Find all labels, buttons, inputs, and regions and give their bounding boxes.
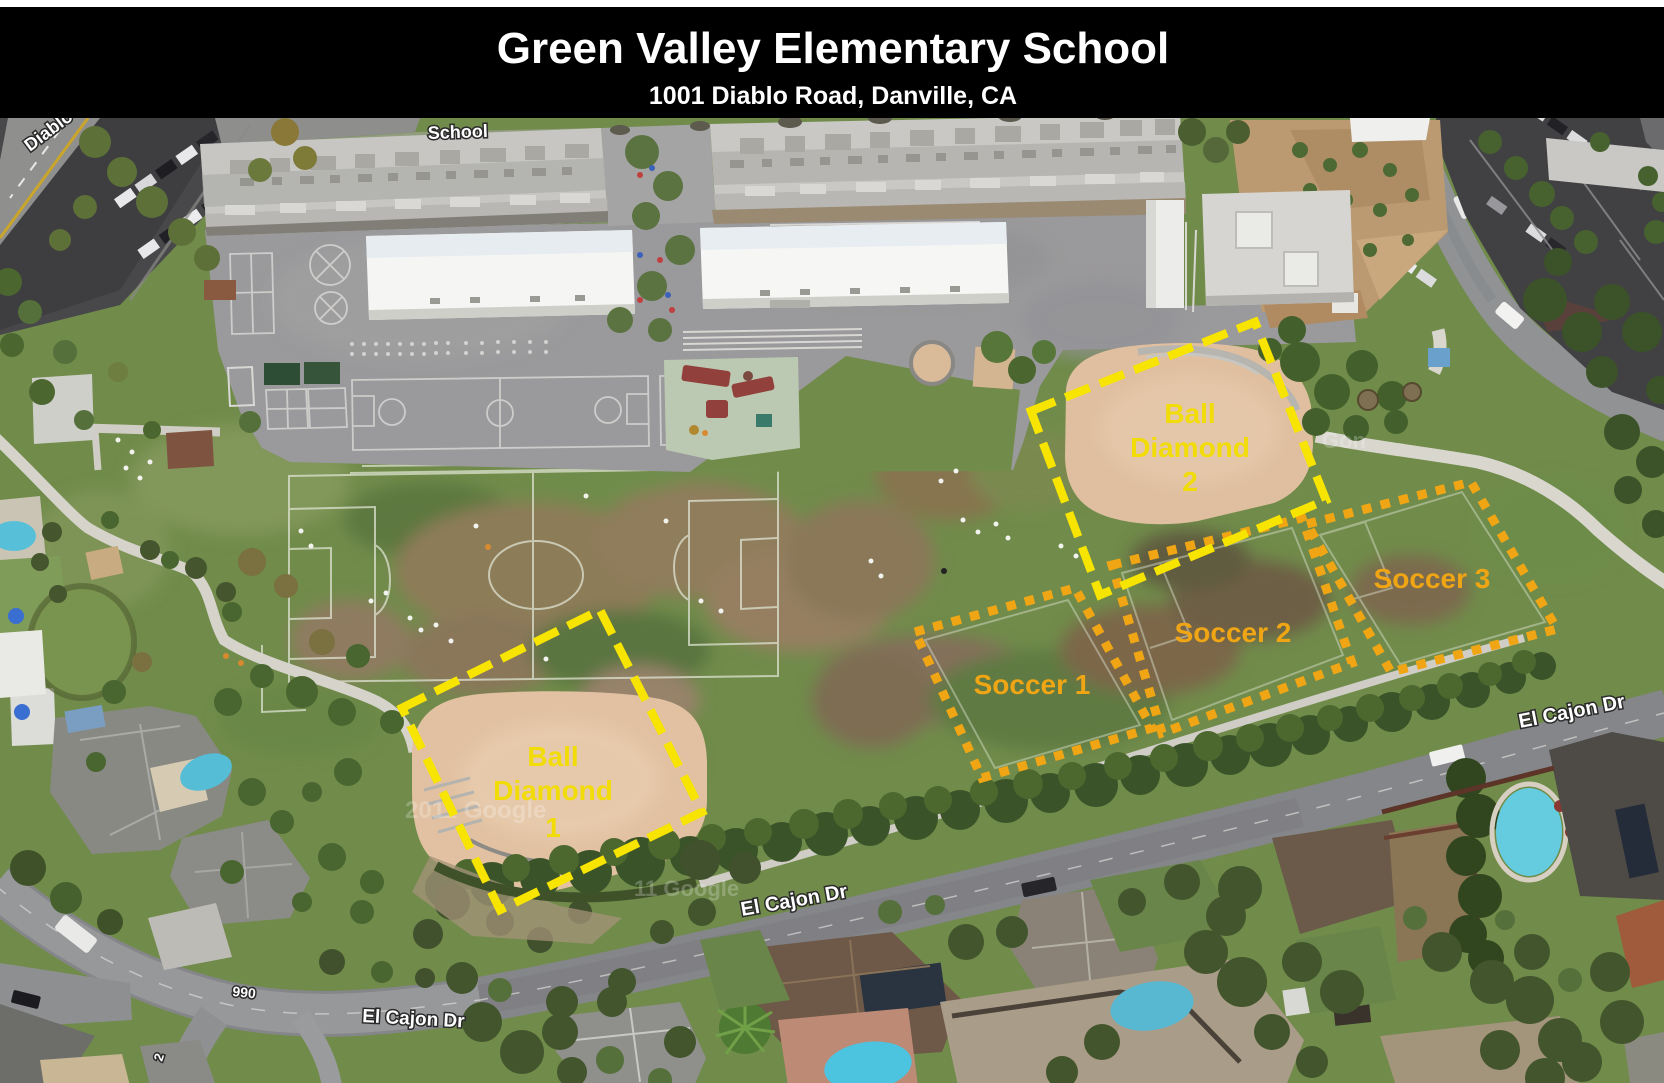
svg-text:Green Valley Elementary School: Green Valley Elementary School	[497, 24, 1170, 73]
svg-text:1: 1	[545, 812, 561, 843]
svg-text:2: 2	[1182, 466, 1198, 497]
svg-text:Soccer 2: Soccer 2	[1175, 617, 1292, 648]
svg-text:Soccer 3: Soccer 3	[1374, 563, 1491, 594]
svg-text:1001 Diablo Road, Danville, CA: 1001 Diablo Road, Danville, CA	[649, 82, 1017, 110]
svg-text:11 Google: 11 Google	[634, 876, 739, 901]
svg-text:990: 990	[232, 983, 257, 1001]
svg-text:Ball: Ball	[527, 741, 578, 772]
svg-text:Gon: Gon	[1322, 428, 1366, 453]
svg-text:Ball: Ball	[1164, 398, 1215, 429]
svg-text:School: School	[427, 121, 488, 143]
svg-text:Diamond: Diamond	[1130, 432, 1250, 463]
svg-text:Diamond: Diamond	[493, 775, 613, 806]
svg-text:Soccer 1: Soccer 1	[974, 669, 1091, 700]
